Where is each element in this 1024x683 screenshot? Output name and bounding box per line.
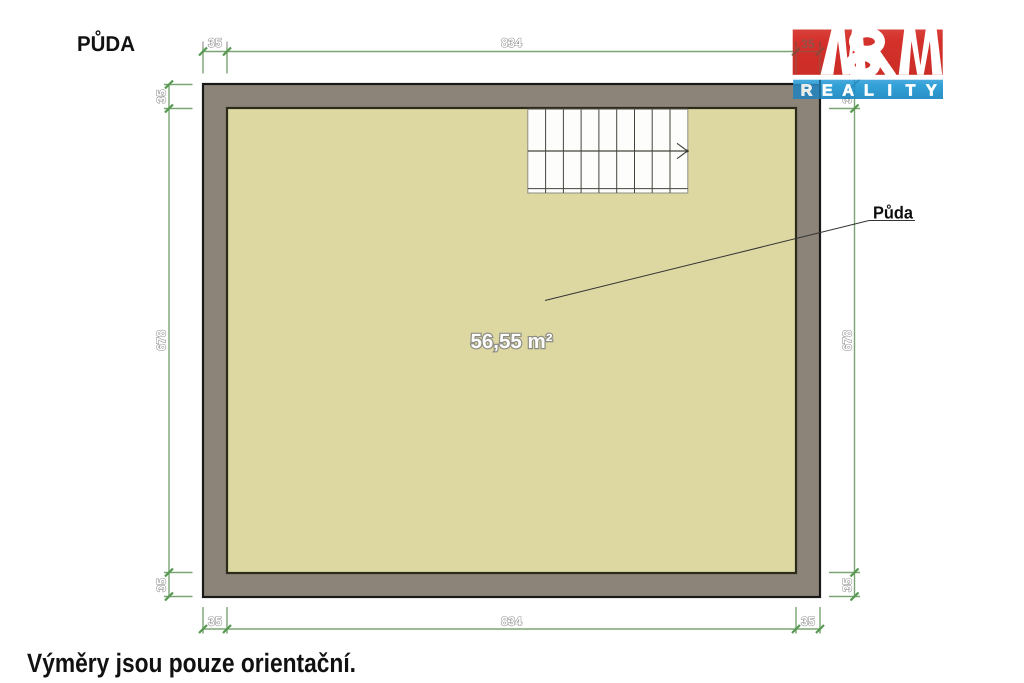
svg-text:834: 834	[501, 36, 522, 50]
svg-text:35: 35	[155, 90, 169, 104]
svg-text:678: 678	[155, 330, 169, 351]
svg-text:678: 678	[841, 330, 855, 351]
svg-text:35: 35	[155, 578, 169, 592]
svg-text:I: I	[887, 82, 891, 99]
svg-text:834: 834	[501, 615, 522, 629]
svg-text:35: 35	[801, 615, 815, 629]
svg-text:Výměry jsou pouze orientační.: Výměry jsou pouze orientační.	[27, 648, 356, 678]
svg-text:L: L	[864, 82, 874, 99]
svg-text:T: T	[906, 82, 916, 99]
svg-text:35: 35	[208, 36, 222, 50]
svg-text:A: A	[842, 82, 854, 99]
svg-text:R: R	[801, 82, 813, 99]
svg-text:35: 35	[801, 37, 815, 51]
svg-text:35: 35	[208, 615, 222, 629]
svg-text:Y: Y	[926, 82, 937, 99]
svg-text:E: E	[822, 82, 833, 99]
svg-text:Půda: Půda	[873, 203, 913, 223]
svg-text:PŮDA: PŮDA	[77, 30, 135, 56]
svg-text:56,55 m²: 56,55 m²	[470, 330, 552, 353]
svg-text:35: 35	[841, 578, 855, 592]
